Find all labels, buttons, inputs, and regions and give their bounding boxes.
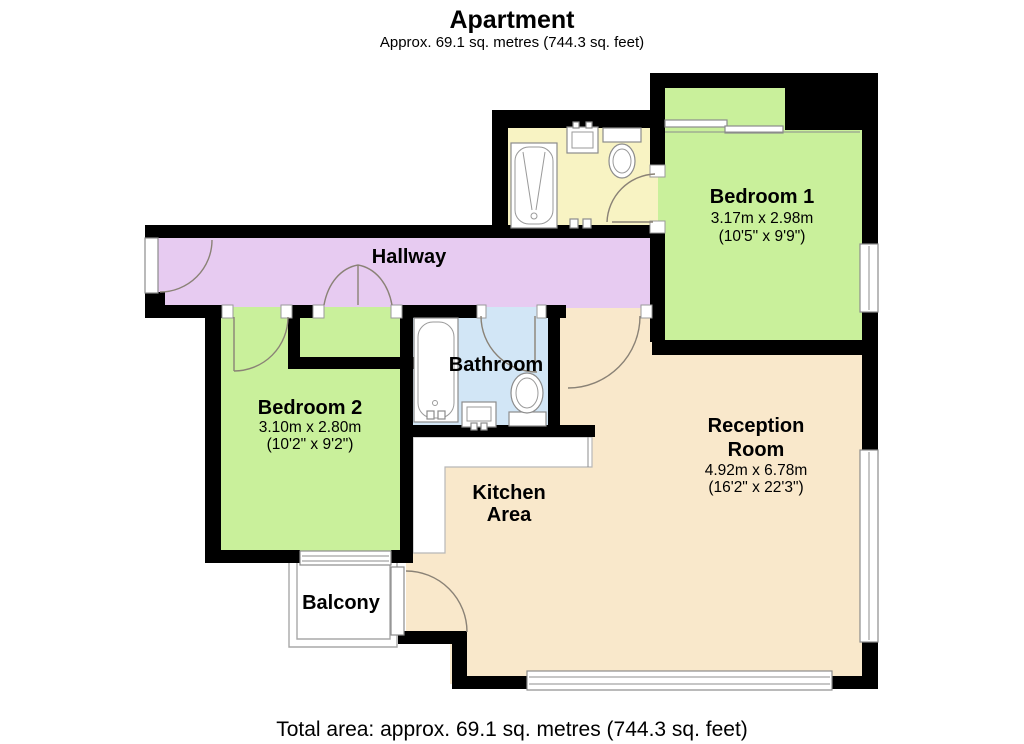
door-jamb: [650, 221, 665, 233]
bedroom2-label: Bedroom 2: [258, 397, 362, 419]
wall: [650, 232, 665, 342]
sink-tap: [481, 423, 487, 430]
kitchen-label-line1: Kitchen: [472, 482, 545, 504]
reception-label-line2: Room: [728, 439, 785, 461]
wall: [862, 355, 878, 452]
door-jamb: [313, 305, 324, 318]
sink-tap: [573, 122, 579, 128]
kitchen-label-line2: Area: [487, 504, 532, 526]
wall: [650, 73, 878, 88]
reception-size-metric: 4.92m x 6.78m: [705, 462, 808, 479]
wall: [862, 73, 878, 246]
door-jamb: [281, 305, 292, 318]
toilet-cistern: [603, 128, 641, 142]
bath-tap: [570, 219, 578, 228]
wall: [398, 631, 467, 644]
wall: [492, 110, 508, 238]
floor-plan-canvas: Apartment Approx. 69.1 sq. metres (744.3…: [0, 0, 1024, 744]
reception-label-line1: Reception: [708, 415, 805, 437]
wall: [832, 676, 878, 689]
bath-tap: [583, 219, 591, 228]
total-area-label: Total area: approx. 69.1 sq. metres (744…: [276, 718, 748, 741]
entrance-door: [145, 238, 158, 293]
page-title: Apartment: [449, 6, 575, 34]
bedroom1-size-metric: 3.17m x 2.98m: [711, 210, 814, 227]
balcony-label: Balcony: [302, 592, 381, 614]
window-reception-bottom: [527, 671, 832, 690]
page-subtitle: Approx. 69.1 sq. metres (744.3 sq. feet): [380, 34, 644, 51]
floor-plan-page: Apartment Approx. 69.1 sq. metres (744.3…: [0, 0, 1024, 744]
door-jamb: [391, 305, 402, 318]
sink-tap: [471, 423, 477, 430]
wall: [650, 88, 665, 168]
balcony-door: [391, 567, 404, 635]
wall: [548, 305, 560, 437]
bath-tap: [438, 411, 445, 419]
toilet-cistern: [509, 412, 546, 426]
wall: [391, 550, 413, 563]
wall: [652, 340, 878, 355]
window-bedroom2-balcony: [300, 551, 391, 565]
door-jamb: [650, 165, 665, 177]
wall: [400, 425, 595, 437]
window-bedroom1-recess-left: [665, 120, 727, 127]
bath-tap: [427, 411, 434, 419]
bathroom-label: Bathroom: [449, 354, 543, 376]
sink-tap: [586, 122, 592, 128]
bedroom1-size-imperial: (10'5" x 9'9"): [719, 228, 806, 245]
room-hallway: [150, 230, 658, 310]
hallway-label: Hallway: [372, 246, 447, 268]
wall: [403, 305, 477, 318]
wall: [205, 550, 300, 563]
wall: [205, 305, 221, 560]
bedroom2-size-metric: 3.10m x 2.80m: [259, 419, 362, 436]
bedroom1-label: Bedroom 1: [710, 186, 814, 208]
door-jamb: [222, 305, 233, 318]
bedroom2-size-imperial: (10'2" x 9'2"): [267, 436, 354, 453]
door-jamb: [537, 305, 546, 318]
reception-size-imperial: (16'2" x 22'3"): [708, 479, 803, 496]
wall: [785, 88, 862, 130]
door-jamb: [641, 305, 652, 318]
bathtub-symbol: [511, 143, 557, 228]
